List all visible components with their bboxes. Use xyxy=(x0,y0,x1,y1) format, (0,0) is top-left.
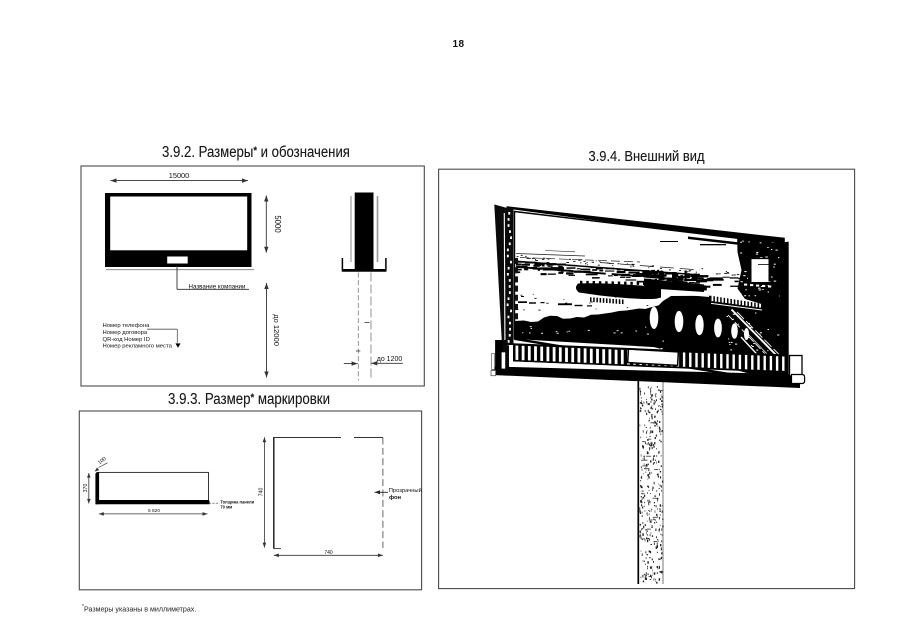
svg-text:до 1200: до 1200 xyxy=(377,356,403,363)
svg-text:370: 370 xyxy=(83,484,89,493)
svg-text:Прозрачный: Прозрачный xyxy=(389,487,422,494)
svg-text:Название компании: Название компании xyxy=(189,284,247,291)
svg-text:70 мм: 70 мм xyxy=(220,505,232,510)
svg-text:до 12000: до 12000 xyxy=(272,314,281,346)
svg-text:5000: 5000 xyxy=(273,215,282,233)
svg-text:Номер рекламного места: Номер рекламного места xyxy=(103,344,173,350)
svg-text:740: 740 xyxy=(324,550,333,556)
svg-text:фон: фон xyxy=(389,494,402,501)
svg-text:100: 100 xyxy=(97,456,108,466)
svg-text:5 820: 5 820 xyxy=(148,508,160,514)
svg-text:Номер договора: Номер договора xyxy=(103,330,148,336)
svg-text:QR-код Номер ID: QR-код Номер ID xyxy=(103,337,150,343)
svg-text:15000: 15000 xyxy=(169,171,190,180)
svg-text:740: 740 xyxy=(259,488,265,497)
svg-text:Номер телефона: Номер телефона xyxy=(103,323,151,329)
